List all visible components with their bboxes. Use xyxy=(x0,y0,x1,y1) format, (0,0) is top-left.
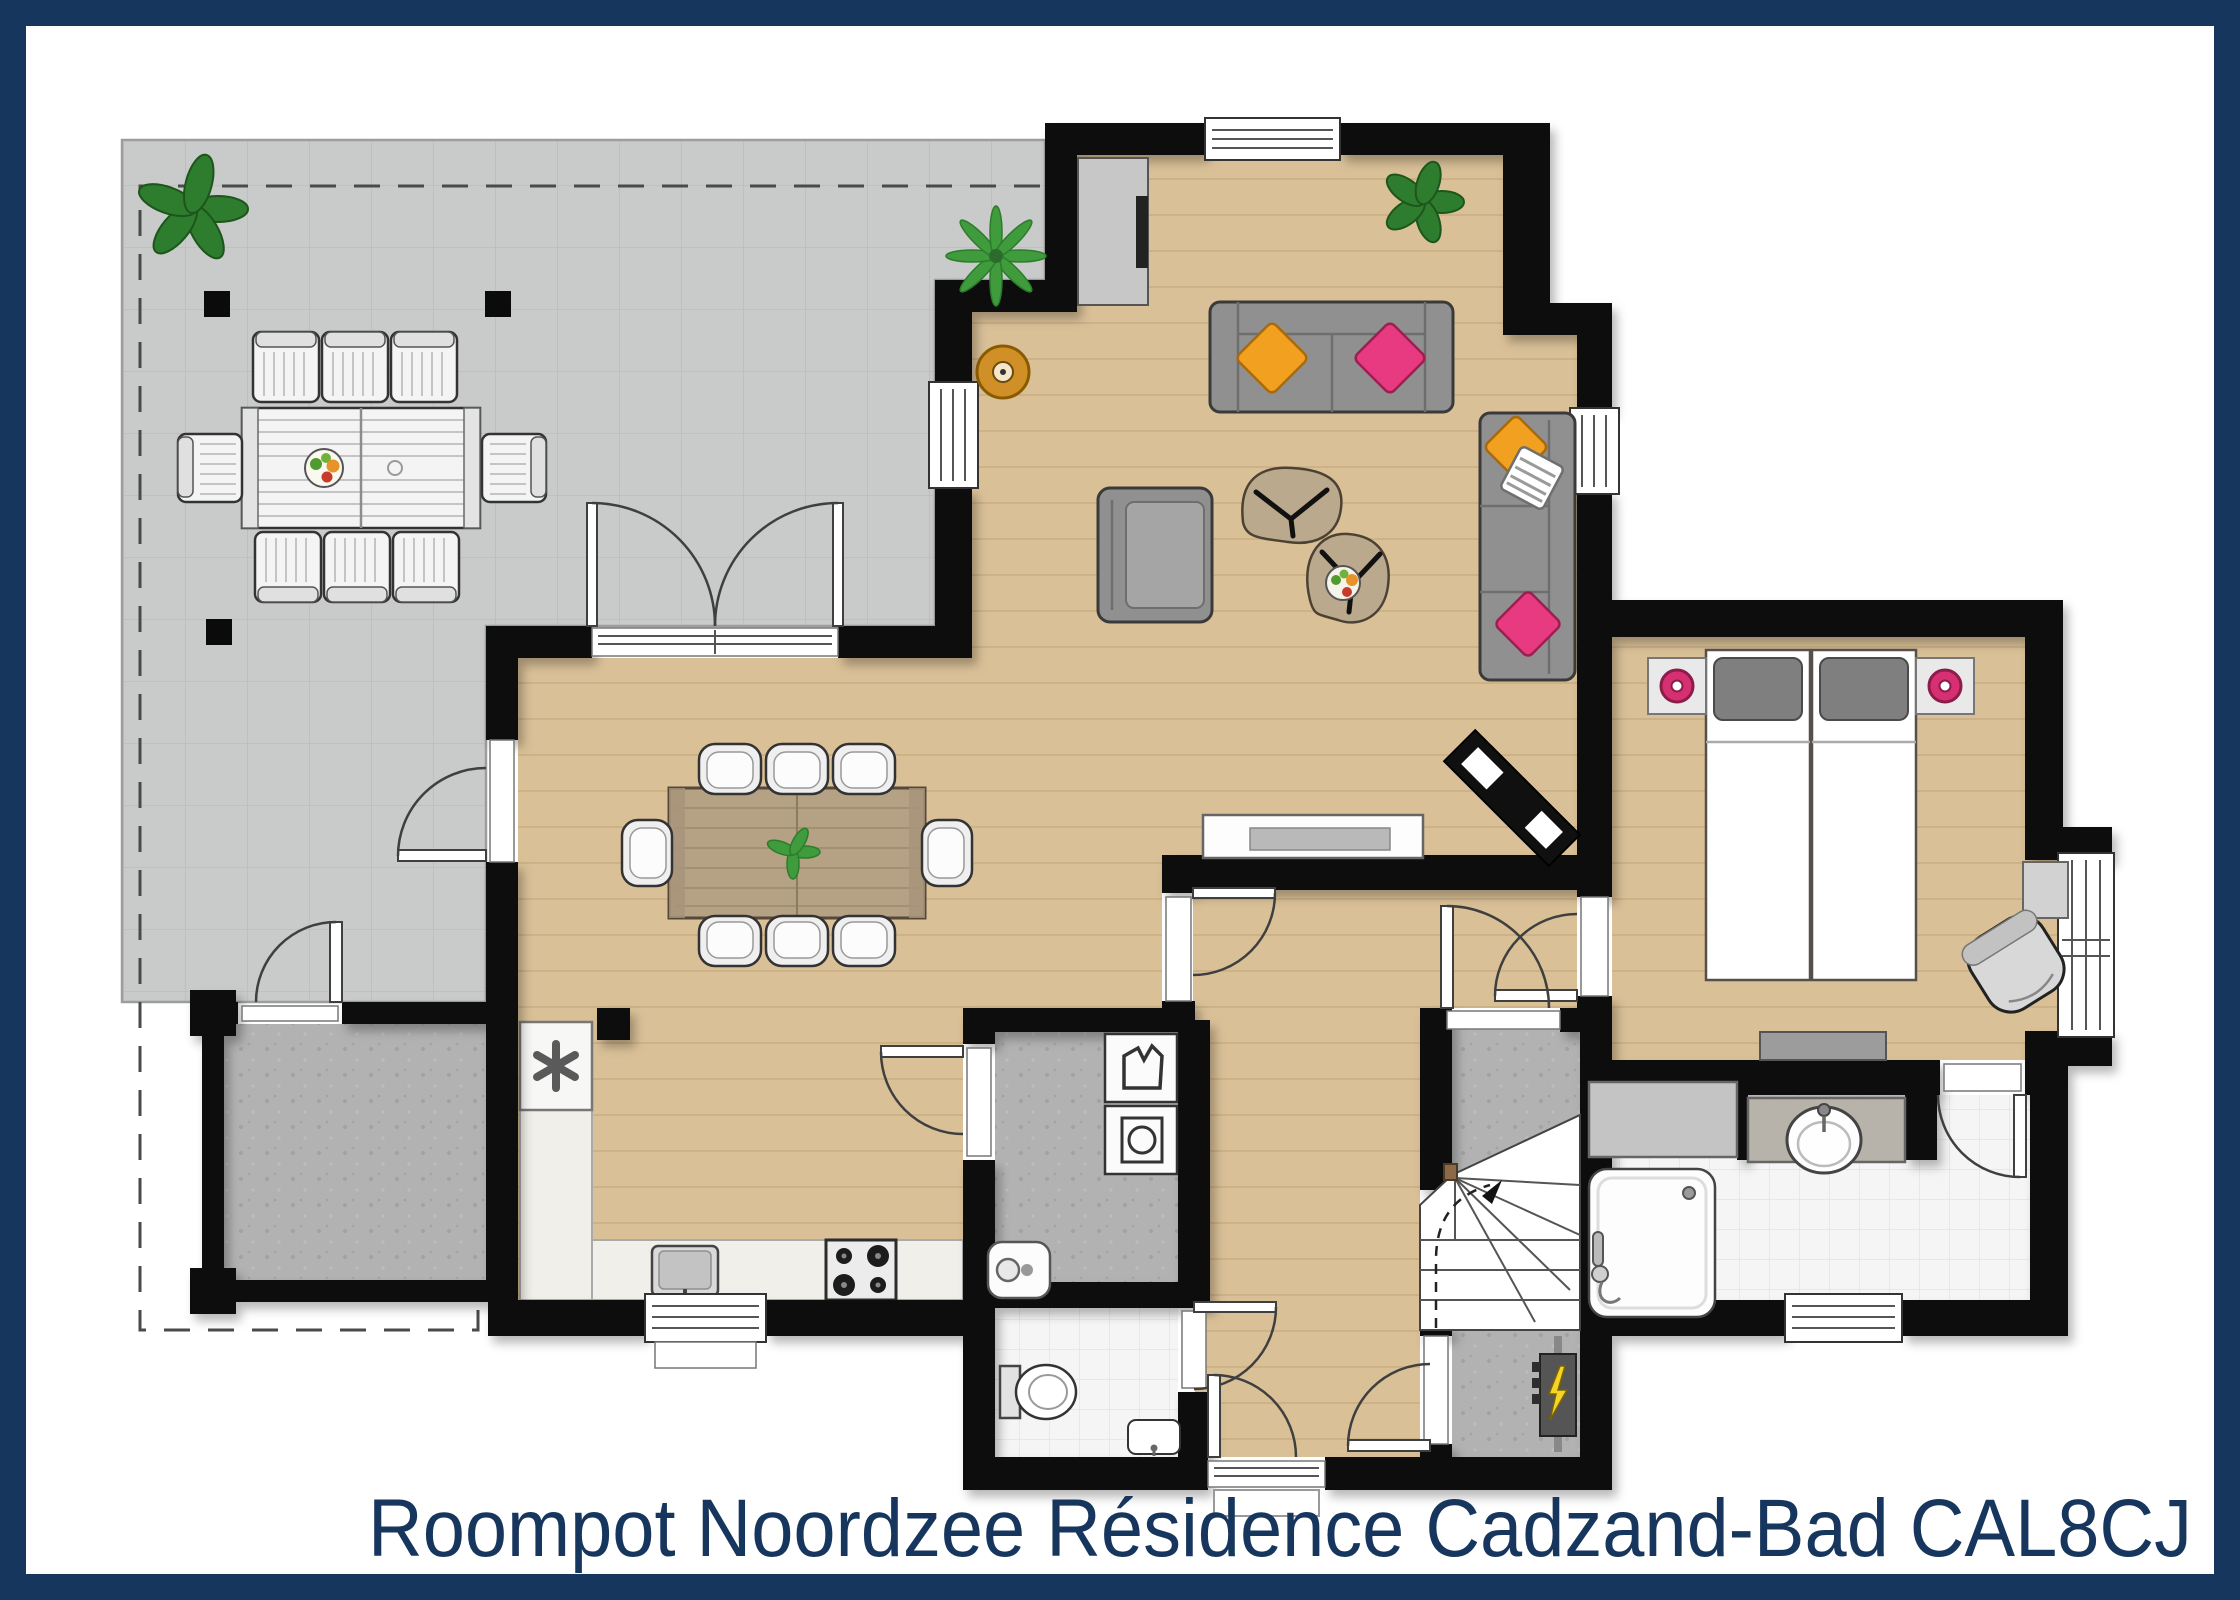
palm-plant xyxy=(946,206,1046,306)
terrace-post xyxy=(485,291,511,317)
hand-shower xyxy=(1593,1232,1603,1266)
gas-hob xyxy=(826,1240,896,1300)
tv-cabinet xyxy=(1078,158,1148,305)
bedroom-dresser xyxy=(1760,1032,1886,1060)
sideboard xyxy=(1203,815,1423,858)
fruit-bowl xyxy=(1326,566,1360,600)
terrace-post xyxy=(206,619,232,645)
kitchen-window xyxy=(645,1294,766,1368)
living-room-east-window xyxy=(1570,408,1619,494)
living-room-top-window xyxy=(1205,118,1340,160)
shower xyxy=(1589,1169,1715,1317)
plan-title: Roompot Noordzee Résidence Cadzand-Bad C… xyxy=(368,1483,2192,1574)
dryer xyxy=(1105,1106,1177,1174)
coffee-table xyxy=(1307,534,1388,623)
toilet-hand-basin xyxy=(1128,1420,1180,1456)
kitchen-sink xyxy=(652,1246,718,1301)
outdoor-dining-table xyxy=(242,408,480,528)
kitchen-counter-left xyxy=(520,1110,592,1300)
floor-plan-page: Roompot Noordzee Résidence Cadzand-Bad C… xyxy=(0,0,2240,1600)
freezer-unit xyxy=(520,1022,592,1110)
kitchen-counter-bottom xyxy=(592,1240,963,1300)
bay-desk xyxy=(2023,862,2068,918)
fruit-bowl xyxy=(305,449,343,487)
bathroom-cabinet xyxy=(1589,1082,1737,1157)
bathroom-sink xyxy=(1748,1098,1905,1173)
living-room-west-window xyxy=(929,382,978,488)
sofa-two-seat xyxy=(1210,302,1453,412)
stair-newel-post xyxy=(1444,1164,1457,1180)
floor-plan: Roompot Noordzee Résidence Cadzand-Bad C… xyxy=(0,0,2240,1600)
dining-table xyxy=(669,788,925,918)
armchair xyxy=(1098,488,1212,622)
tv xyxy=(1136,196,1148,268)
chaise-sofa xyxy=(1480,413,1575,680)
storage-room-floor xyxy=(224,1024,486,1280)
shower-drain xyxy=(1683,1187,1695,1199)
single-bed xyxy=(1706,650,1810,980)
bathroom-window xyxy=(1785,1294,1902,1342)
terrace-post xyxy=(204,291,230,317)
coffee-table xyxy=(1242,468,1341,543)
nightstand-right xyxy=(1916,658,1974,714)
toilet xyxy=(1000,1365,1076,1419)
bed-pillow xyxy=(1714,658,1802,720)
washing-machine xyxy=(1105,1034,1177,1102)
single-bed xyxy=(1812,650,1916,980)
boiler xyxy=(988,1242,1050,1298)
round-side-table xyxy=(977,346,1029,398)
nightstand-left xyxy=(1648,658,1706,714)
bed-pillow xyxy=(1820,658,1908,720)
